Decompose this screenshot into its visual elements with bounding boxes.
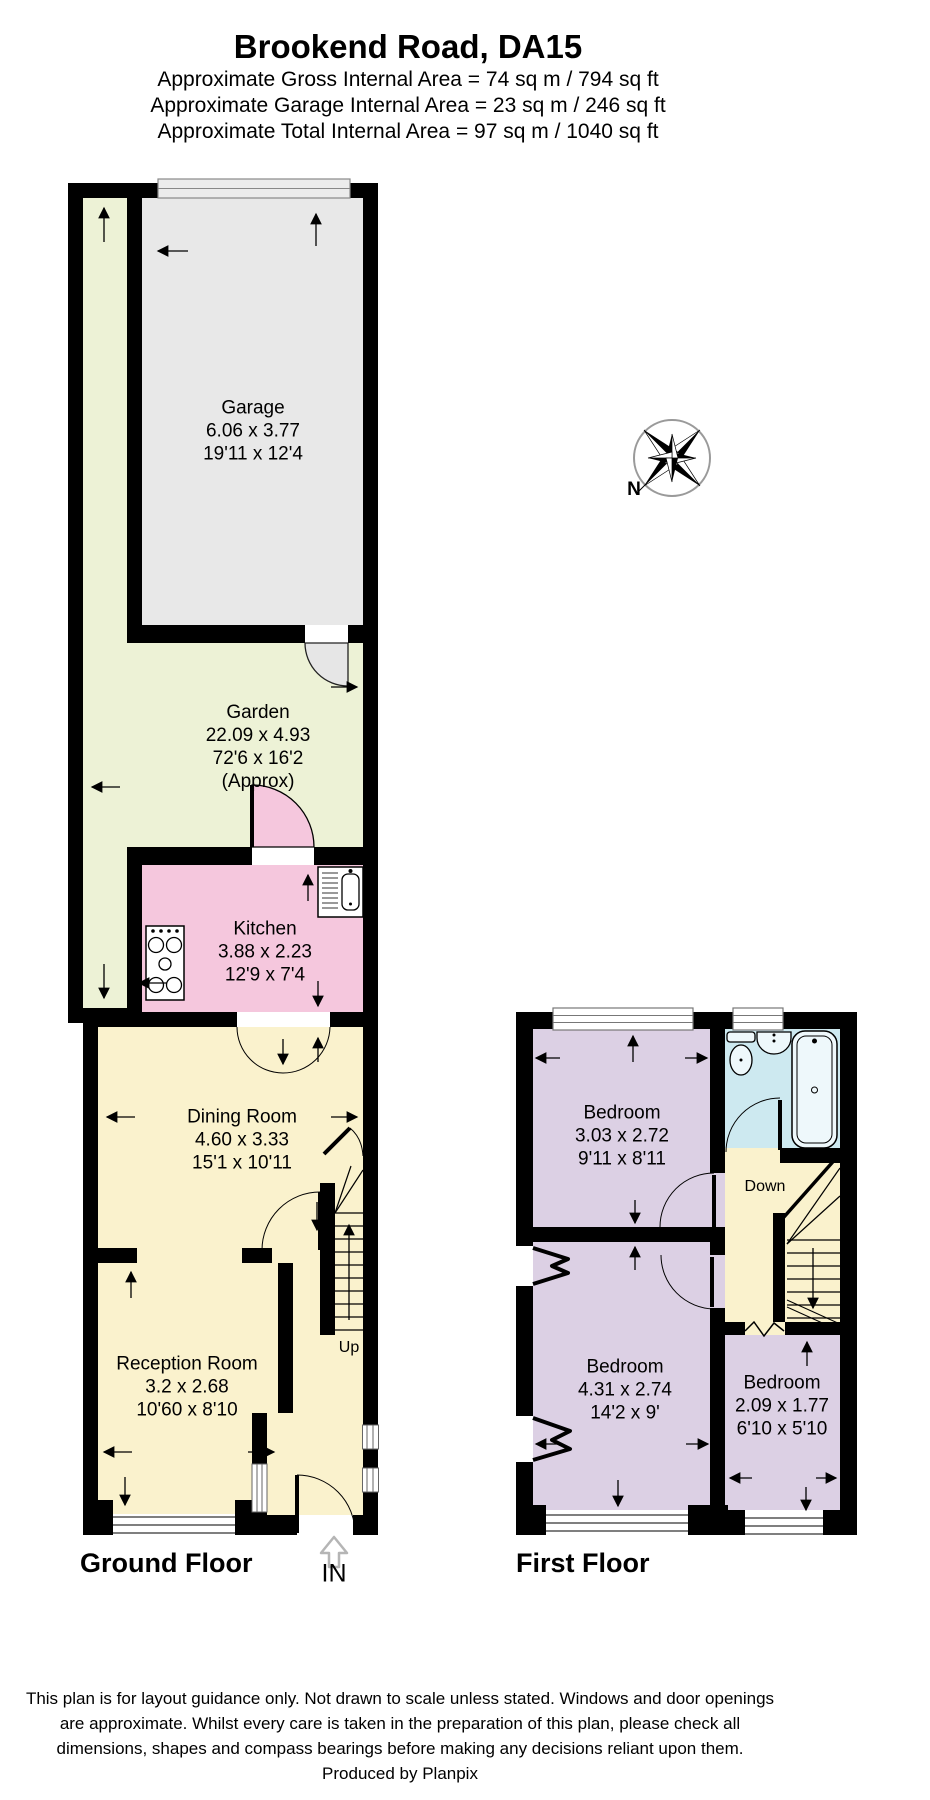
floorplan-page: Brookend Road, DA15 Approximate Gross In…: [0, 0, 930, 1800]
bedroom2-label: Bedroom 4.31 x 2.74 14'2 x 9': [578, 1356, 672, 1425]
disclaimer-line: dimensions, shapes and compass bearings …: [0, 1736, 800, 1761]
up-label: Up: [339, 1339, 359, 1357]
sink-icon: [318, 867, 363, 917]
compass-icon: [634, 420, 710, 496]
bedroom3-label: Bedroom 2.09 x 1.77 6'10 x 5'10: [735, 1372, 829, 1441]
reception-bay-window-icon: [113, 1514, 235, 1535]
garden-label: Garden 22.09 x 4.93 72'6 x 16'2 (Approx): [206, 701, 311, 793]
disclaimer: This plan is for layout guidance only. N…: [0, 1686, 800, 1786]
hob-icon: [146, 926, 184, 1000]
north-label: N: [627, 479, 641, 501]
kitchen-label: Kitchen 3.88 x 2.23 12'9 x 7'4: [218, 918, 312, 987]
disclaimer-line: This plan is for layout guidance only. N…: [0, 1686, 800, 1711]
first-floor-title: First Floor: [516, 1548, 650, 1579]
porch-window-icon: [252, 1464, 267, 1512]
reception-room-label: Reception Room 3.2 x 2.68 10'60 x 8'10: [116, 1353, 258, 1422]
first-floor-plan: [516, 1008, 857, 1535]
down-label: Down: [745, 1178, 786, 1196]
plan-graphics: [0, 0, 930, 1800]
bedroom1-label: Bedroom 3.03 x 2.72 9'11 x 8'11: [575, 1102, 669, 1171]
entrance-label: IN: [322, 1560, 347, 1589]
ground-floor-title: Ground Floor: [80, 1548, 252, 1579]
garage-window-icon: [158, 179, 350, 198]
disclaimer-line: are approximate. Whilst every care is ta…: [0, 1711, 800, 1736]
producer-credit: Produced by Planpix: [0, 1761, 800, 1786]
dining-room-label: Dining Room 4.60 x 3.33 15'1 x 10'11: [187, 1106, 297, 1175]
garage-label: Garage 6.06 x 3.77 19'11 x 12'4: [203, 397, 303, 466]
bathtub-icon: [792, 1031, 837, 1148]
